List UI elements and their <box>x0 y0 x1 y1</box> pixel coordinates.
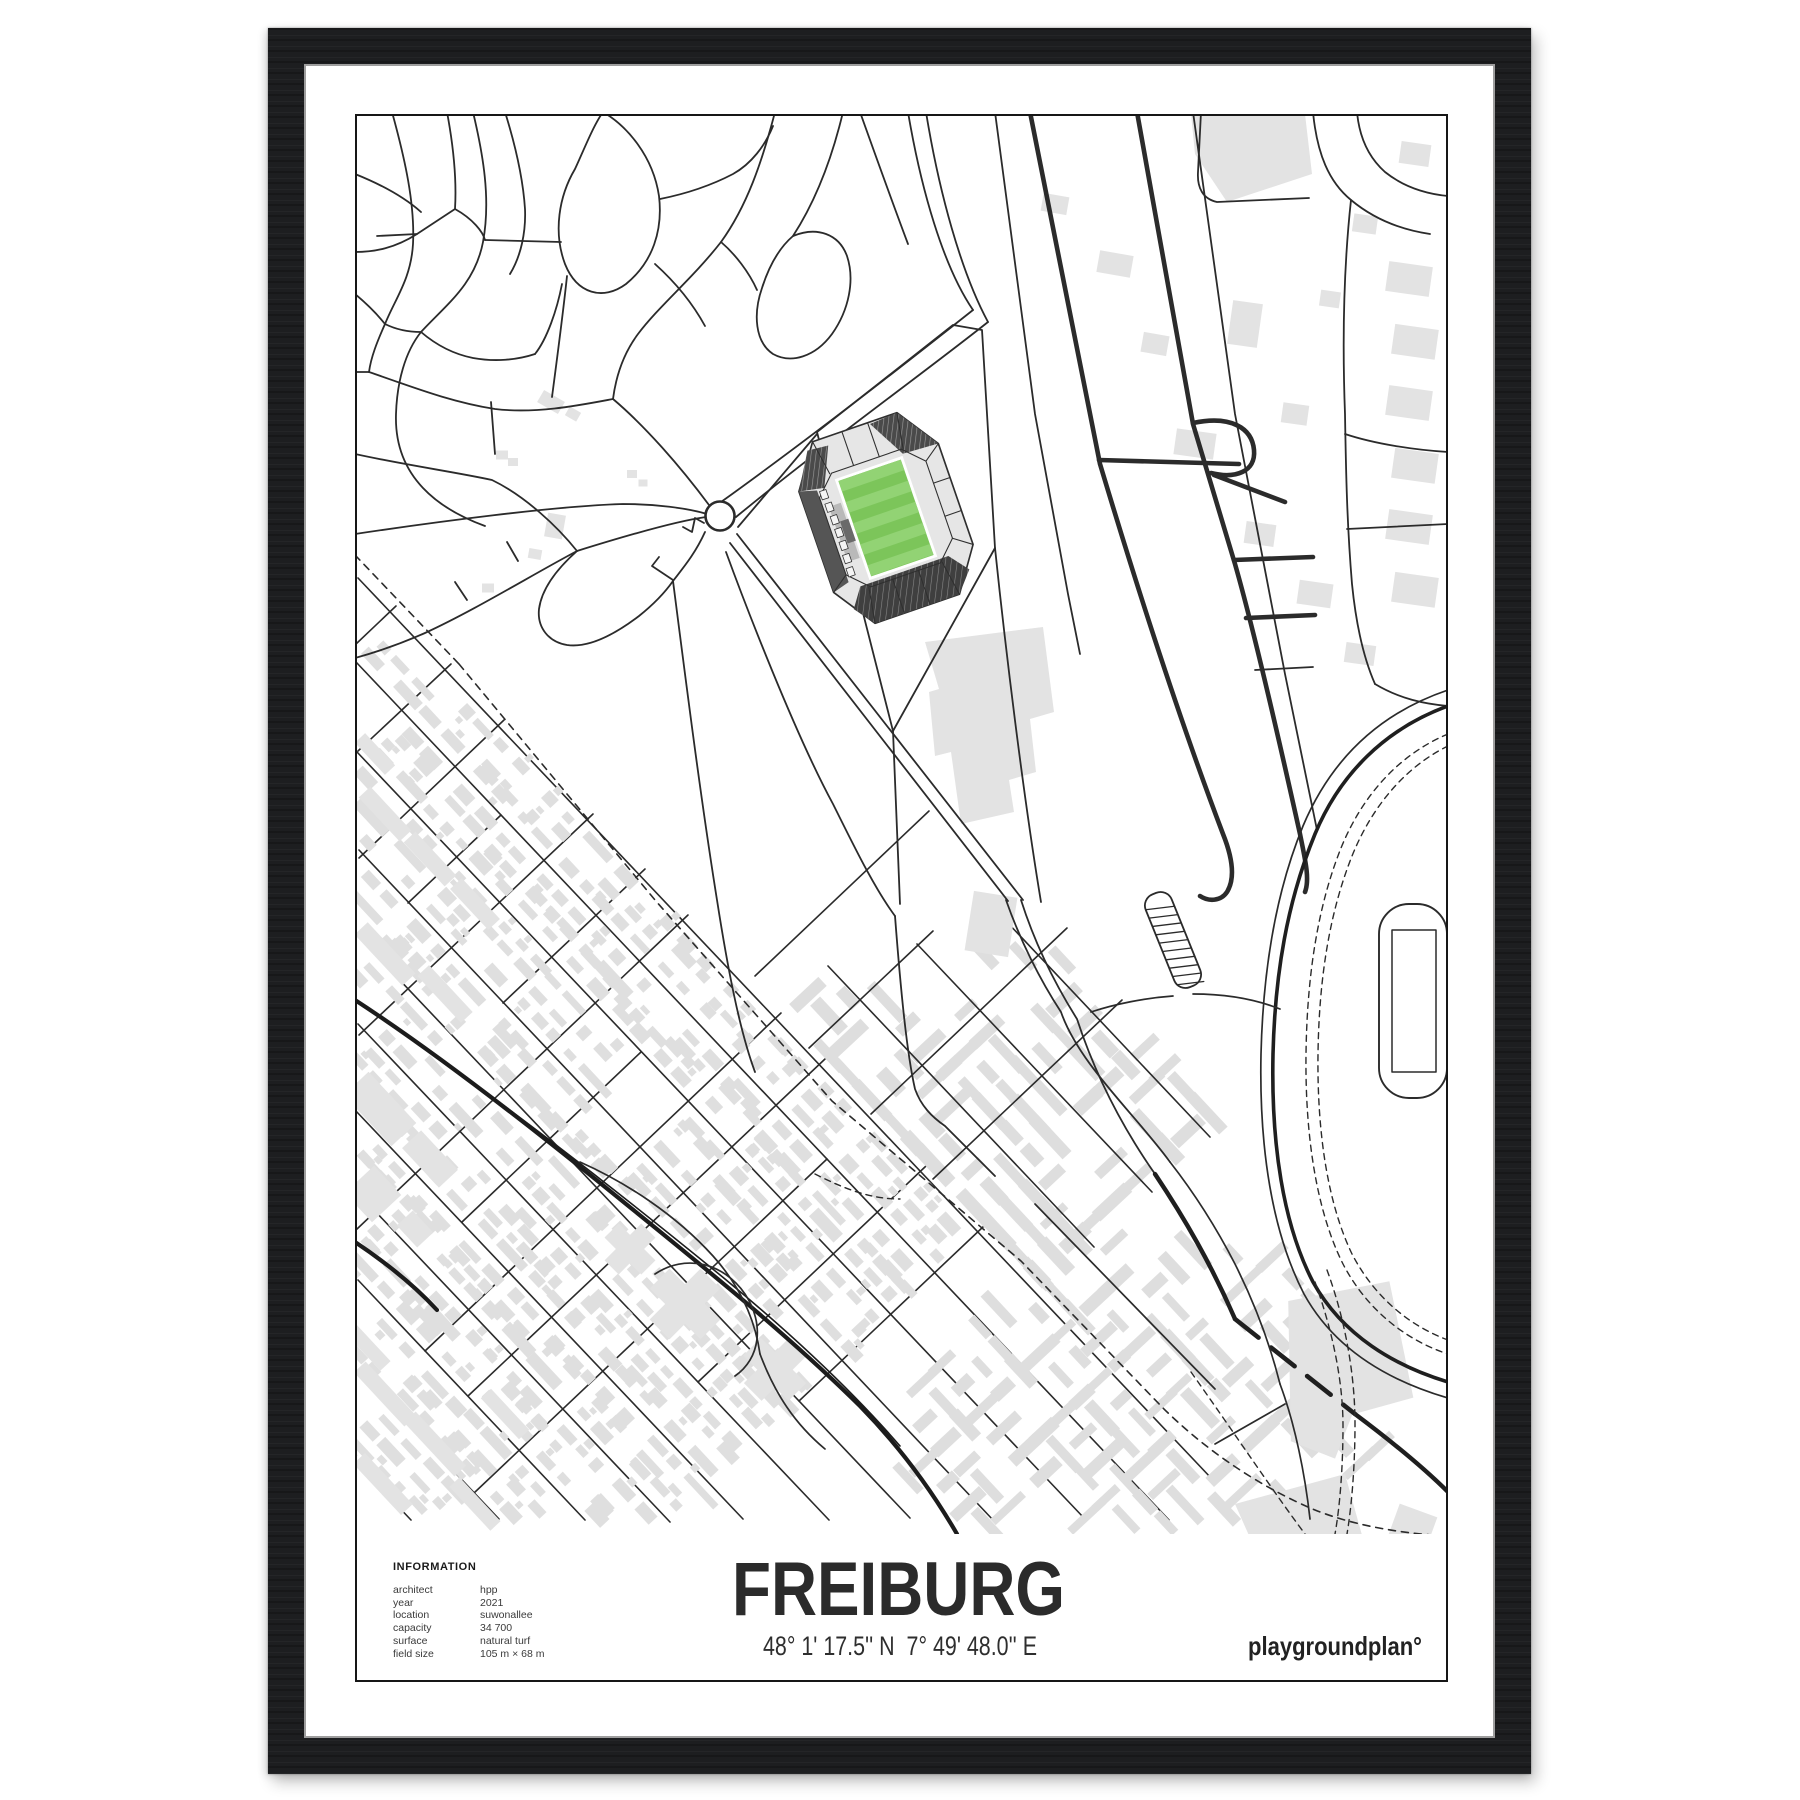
svg-text:FREIBURG: FREIBURG <box>732 1547 1065 1632</box>
svg-text:48° 1' 17.5'' N 7° 49' 48.0'': 48° 1' 17.5'' N 7° 49' 48.0'' E <box>763 1631 1037 1661</box>
svg-text:playgroundplan°: playgroundplan° <box>1248 1631 1422 1661</box>
